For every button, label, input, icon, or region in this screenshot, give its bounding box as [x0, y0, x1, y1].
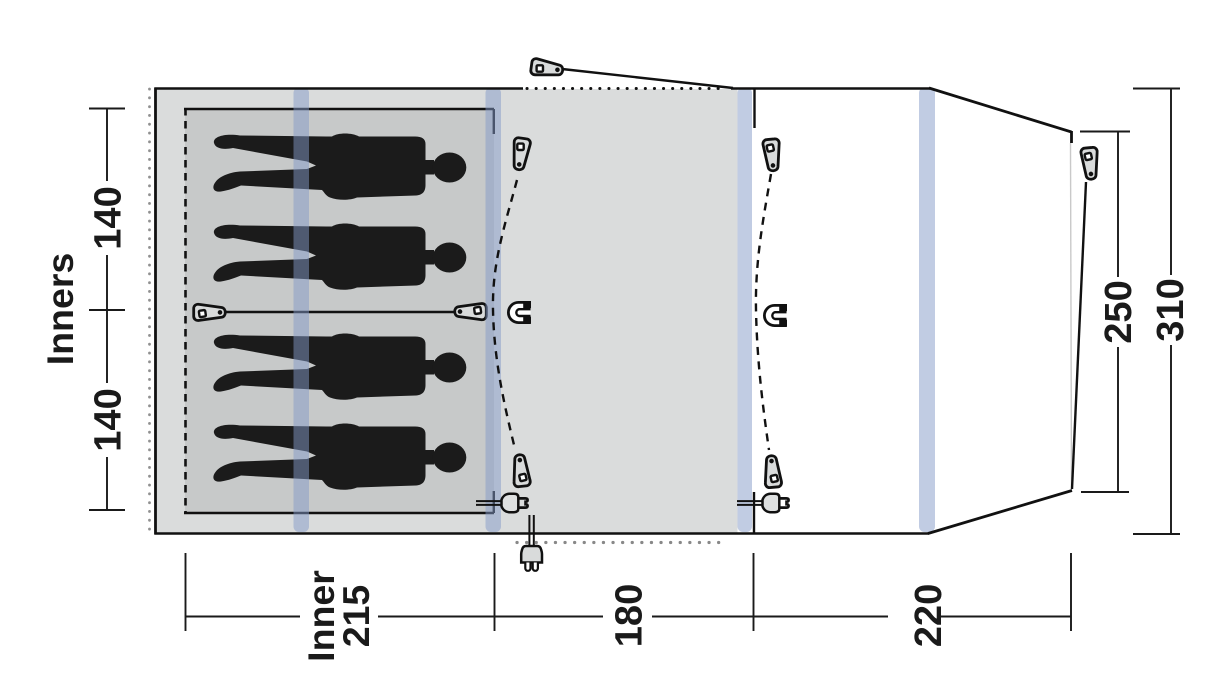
svg-text:215: 215 — [335, 585, 377, 648]
svg-text:140: 140 — [88, 388, 130, 451]
svg-text:180: 180 — [609, 584, 651, 647]
svg-text:310: 310 — [1150, 278, 1192, 341]
svg-text:140: 140 — [88, 186, 130, 249]
svg-text:250: 250 — [1098, 280, 1140, 343]
svg-text:220: 220 — [908, 584, 950, 647]
svg-text:Inners: Inners — [39, 253, 81, 366]
